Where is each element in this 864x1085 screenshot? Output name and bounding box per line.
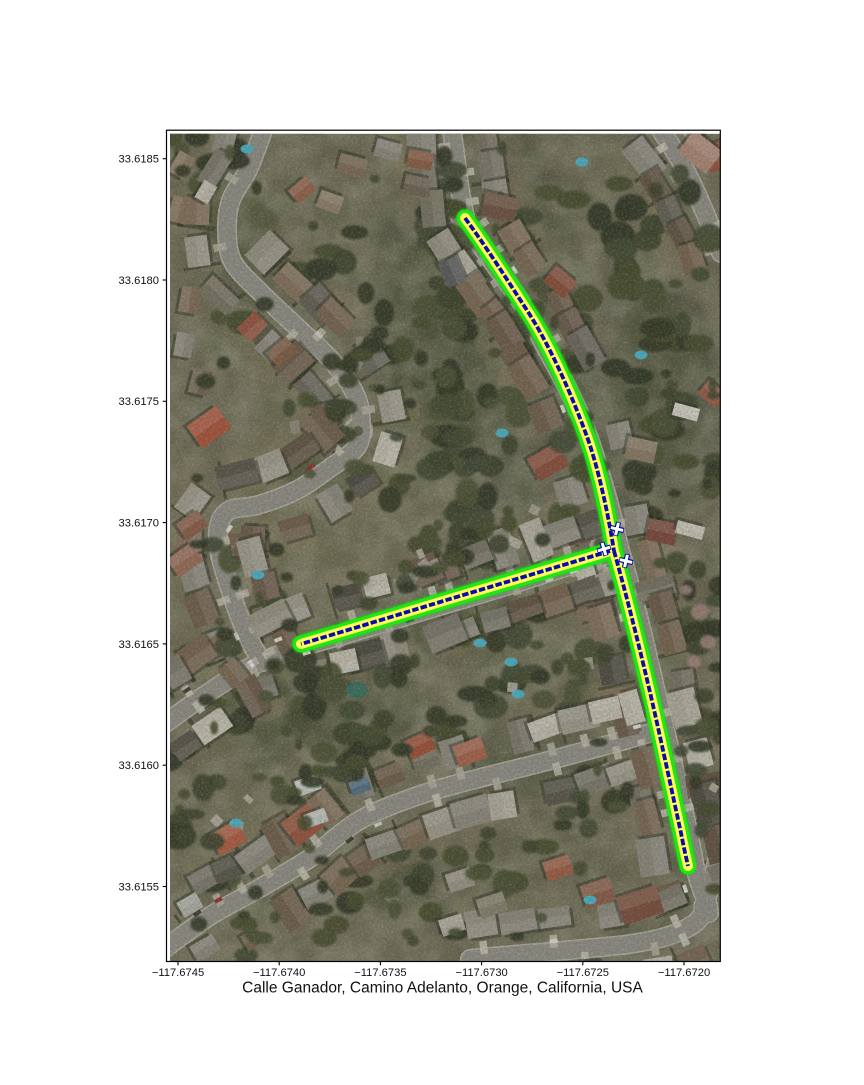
svg-text:−117.6725: −117.6725 (557, 967, 609, 979)
svg-text:Calle Ganador, Camino Adelanto: Calle Ganador, Camino Adelanto, Orange, … (242, 980, 643, 997)
svg-text:33.6180: 33.6180 (119, 275, 159, 287)
svg-text:−117.6735: −117.6735 (354, 967, 406, 979)
svg-text:−117.6745: −117.6745 (152, 967, 204, 979)
svg-text:33.6160: 33.6160 (119, 760, 159, 772)
svg-text:33.6170: 33.6170 (119, 518, 159, 530)
svg-text:−117.6730: −117.6730 (455, 967, 507, 979)
svg-text:33.6165: 33.6165 (119, 639, 159, 651)
svg-text:−117.6720: −117.6720 (658, 967, 710, 979)
svg-text:33.6175: 33.6175 (119, 396, 159, 408)
svg-text:33.6185: 33.6185 (119, 154, 159, 166)
svg-text:33.6155: 33.6155 (119, 881, 159, 893)
svg-text:−117.6740: −117.6740 (253, 967, 305, 979)
